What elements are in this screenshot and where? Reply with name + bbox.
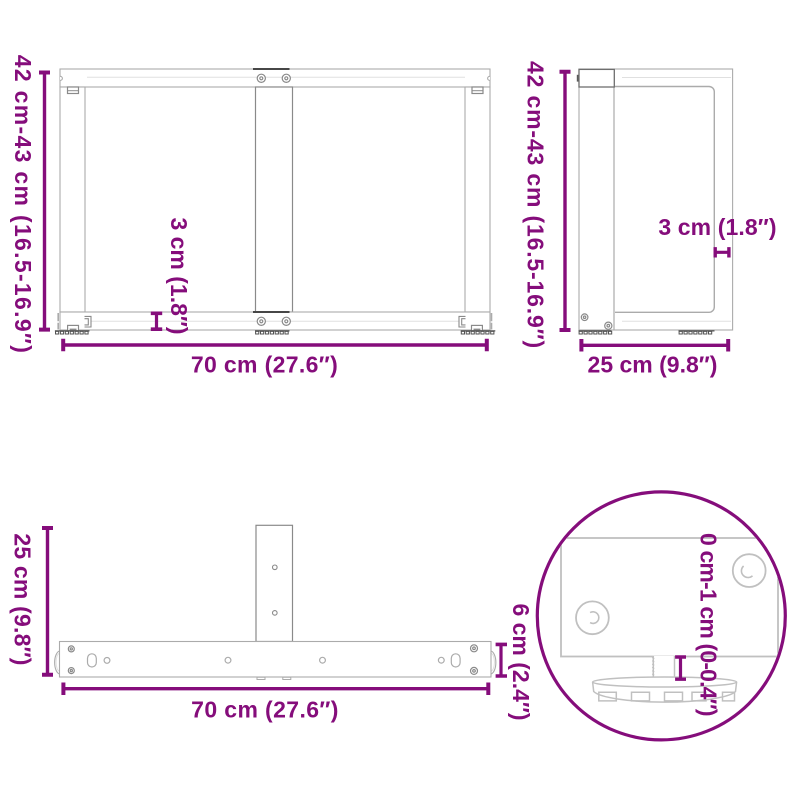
svg-text:42 cm-43 cm (16.5-16.9″): 42 cm-43 cm (16.5-16.9″) — [523, 61, 549, 349]
svg-text:6 cm (2.4″): 6 cm (2.4″) — [508, 603, 534, 720]
svg-text:0 cm-1 cm (0-0.4″): 0 cm-1 cm (0-0.4″) — [696, 533, 722, 716]
svg-text:25 cm (9.8″): 25 cm (9.8″) — [588, 352, 718, 378]
svg-text:70 cm (27.6″): 70 cm (27.6″) — [191, 697, 339, 723]
svg-text:25 cm (9.8″): 25 cm (9.8″) — [10, 533, 36, 665]
svg-text:42 cm-43 cm (16.5-16.9″): 42 cm-43 cm (16.5-16.9″) — [10, 55, 36, 354]
svg-text:3 cm (1.8″): 3 cm (1.8″) — [658, 214, 776, 240]
svg-text:3 cm (1.8″): 3 cm (1.8″) — [166, 217, 192, 334]
svg-text:70 cm (27.6″): 70 cm (27.6″) — [191, 352, 338, 378]
